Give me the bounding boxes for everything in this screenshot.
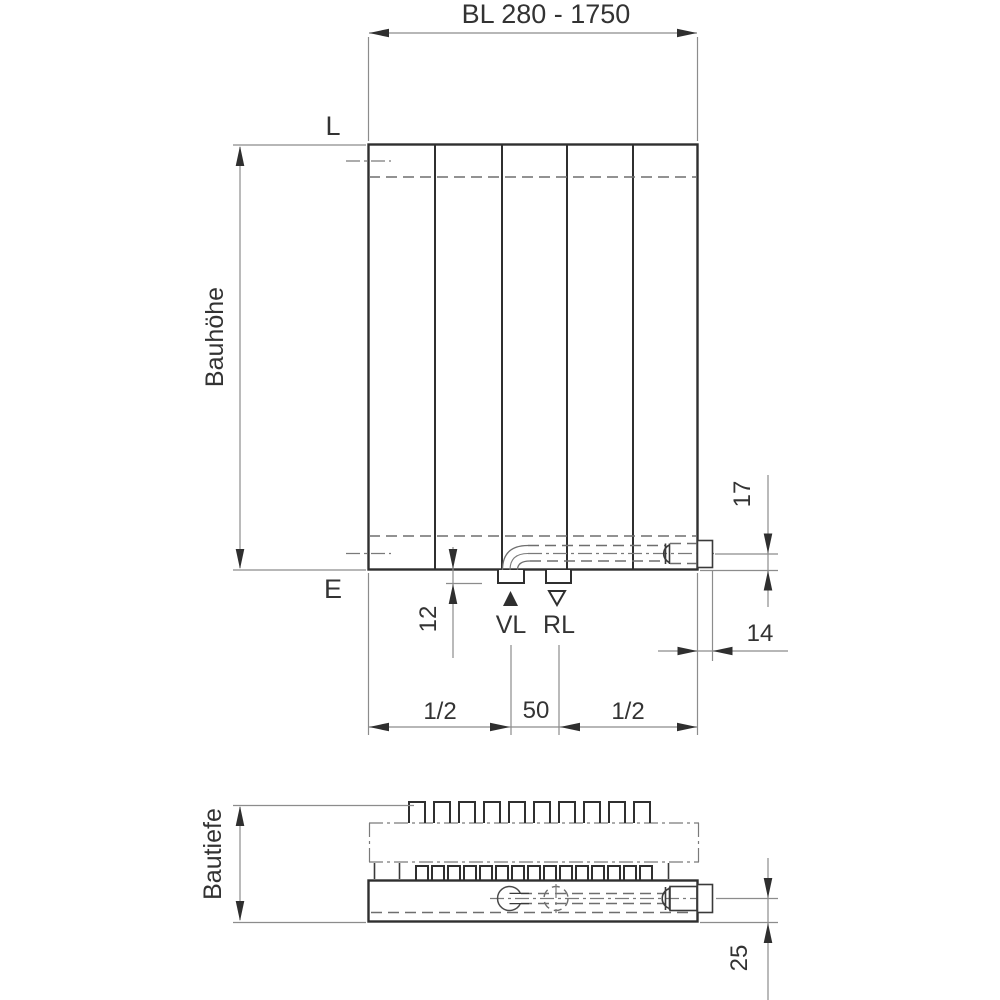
fin-envelope	[369, 823, 699, 862]
left-half-dim-label: 1/2	[423, 698, 456, 725]
depth-dim-label: Bautiefe	[199, 808, 227, 900]
dimension-length: BL 280 - 1750	[369, 0, 698, 141]
radiator-dimension-drawing: BL 280 - 1750 L E Bauhöhe 12 VL RL	[0, 0, 1000, 1000]
side-offset-dim-label: 14	[747, 620, 774, 647]
supply-flow-icon	[503, 591, 518, 606]
fitting-cap-plan	[698, 885, 713, 913]
center-dim-label: 50	[523, 697, 550, 724]
fin-row-upper	[409, 802, 650, 823]
return-stub	[546, 570, 571, 583]
return-flow-icon	[549, 591, 565, 605]
label-rl: RL	[543, 611, 575, 639]
radiator-body-plan	[369, 881, 698, 922]
radiator-body	[369, 145, 698, 570]
supply-stub	[498, 570, 524, 583]
pipe-offset-dim-label: 25	[726, 945, 753, 972]
length-dim-label: BL 280 - 1750	[462, 0, 631, 29]
stub-depth-dim-label: 12	[415, 606, 442, 633]
dimension-height: Bauhöhe	[201, 145, 366, 570]
label-vl: VL	[496, 611, 527, 639]
technical-drawing-page: BL 280 - 1750 L E Bauhöhe 12 VL RL	[0, 0, 1000, 1000]
fitting-cap-front	[698, 541, 713, 568]
front-view	[346, 145, 714, 607]
fin-row-lower	[416, 866, 652, 880]
label-e: E	[324, 574, 342, 604]
dimension-connection-spacing: 1/2 50 1/2	[369, 573, 698, 735]
label-l: L	[325, 111, 340, 141]
pipe-height-dim-label: 17	[729, 481, 756, 508]
dimension-pipe-offset: 25	[700, 858, 778, 1000]
height-dim-label: Bauhöhe	[201, 287, 229, 387]
right-half-dim-label: 1/2	[611, 698, 644, 725]
top-view	[369, 802, 715, 922]
